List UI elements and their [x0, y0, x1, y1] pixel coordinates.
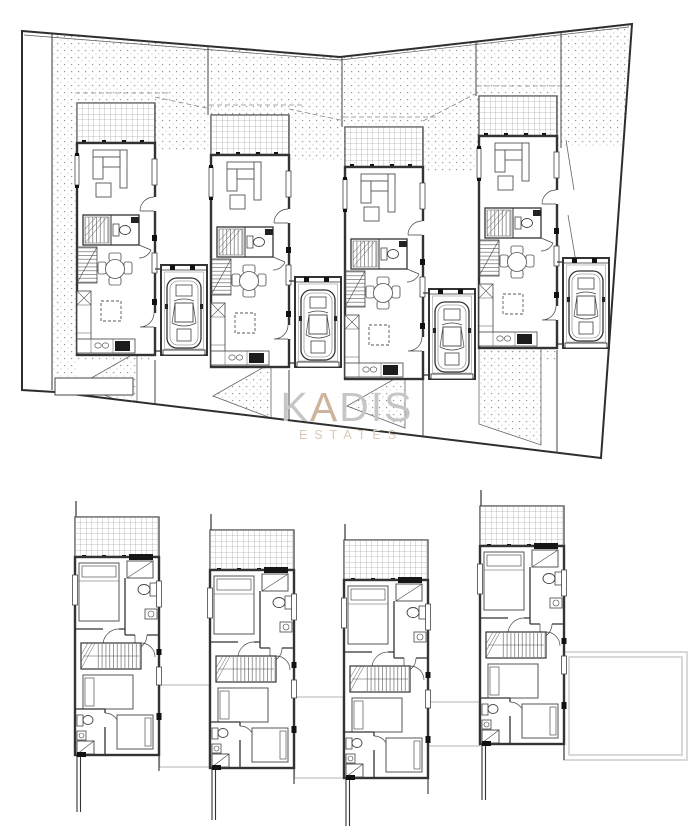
watermark-brand: KADIS: [280, 384, 413, 430]
watermark-letter-a: A: [310, 384, 339, 430]
watermark-letter-k: K: [280, 384, 309, 430]
wall-extension-lines: [77, 744, 564, 826]
watermark: KADIS ESTATES: [280, 384, 413, 442]
watermark-subtitle: ESTATES: [299, 428, 403, 442]
road-strip: [23, 32, 52, 389]
first-floor-plan: [73, 490, 688, 826]
watermark-letters-dis: DIS: [339, 384, 413, 430]
first-floor-unit-1: [73, 501, 162, 757]
architectural-drawing: KADIS ESTATES: [0, 0, 688, 826]
floor-plan-sheet: KADIS ESTATES: [0, 0, 688, 826]
first-floor-unit-4: [478, 490, 567, 746]
entry-pad: [55, 378, 133, 395]
first-floor-unit-2: [208, 514, 297, 770]
first-floor-unit-3: [342, 524, 431, 780]
